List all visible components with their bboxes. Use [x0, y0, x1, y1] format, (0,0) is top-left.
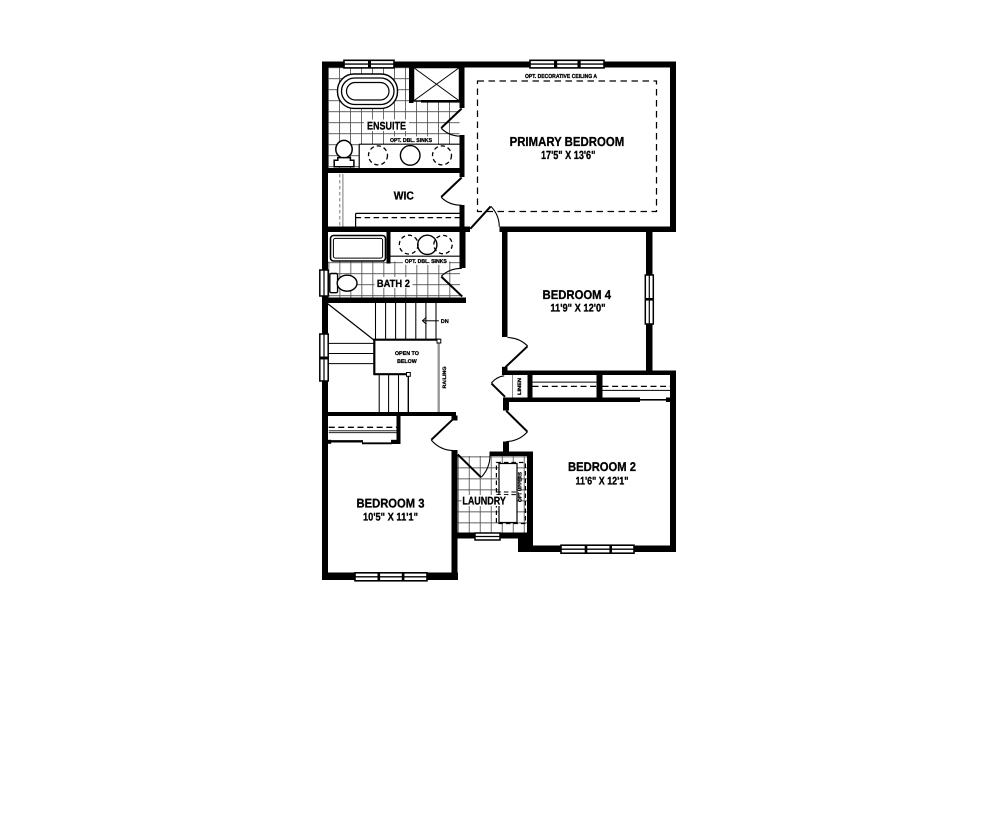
- svg-text:DN: DN: [441, 319, 449, 325]
- svg-text:OPT UPPERS: OPT UPPERS: [518, 471, 524, 502]
- svg-text:OPEN TO: OPEN TO: [395, 351, 419, 357]
- svg-text:10'5" X 11'1": 10'5" X 11'1": [363, 512, 418, 524]
- svg-text:BEDROOM 4: BEDROOM 4: [543, 288, 612, 302]
- svg-text:ENSUITE: ENSUITE: [367, 121, 406, 133]
- svg-text:BATH 2: BATH 2: [377, 278, 410, 290]
- svg-text:17'5" X 13'6": 17'5" X 13'6": [541, 148, 596, 162]
- svg-text:OPT. DBL. SINKS: OPT. DBL. SINKS: [390, 138, 432, 144]
- svg-text:BELOW: BELOW: [397, 359, 417, 365]
- svg-text:BEDROOM 3: BEDROOM 3: [357, 497, 425, 511]
- svg-text:RAILING: RAILING: [442, 366, 448, 388]
- svg-text:WIC: WIC: [394, 191, 414, 203]
- svg-text:11'9" X 12'0": 11'9" X 12'0": [550, 303, 605, 315]
- svg-text:LINEN: LINEN: [517, 378, 523, 395]
- svg-text:OPT. DECORATIVE CEILING A: OPT. DECORATIVE CEILING A: [525, 73, 598, 80]
- svg-text:OPT. DBL. SINKS: OPT. DBL. SINKS: [405, 259, 447, 265]
- svg-text:11'6" X 12'1": 11'6" X 12'1": [576, 475, 629, 487]
- svg-text:BEDROOM 2: BEDROOM 2: [568, 460, 636, 474]
- svg-text:LAUNDRY: LAUNDRY: [462, 496, 506, 508]
